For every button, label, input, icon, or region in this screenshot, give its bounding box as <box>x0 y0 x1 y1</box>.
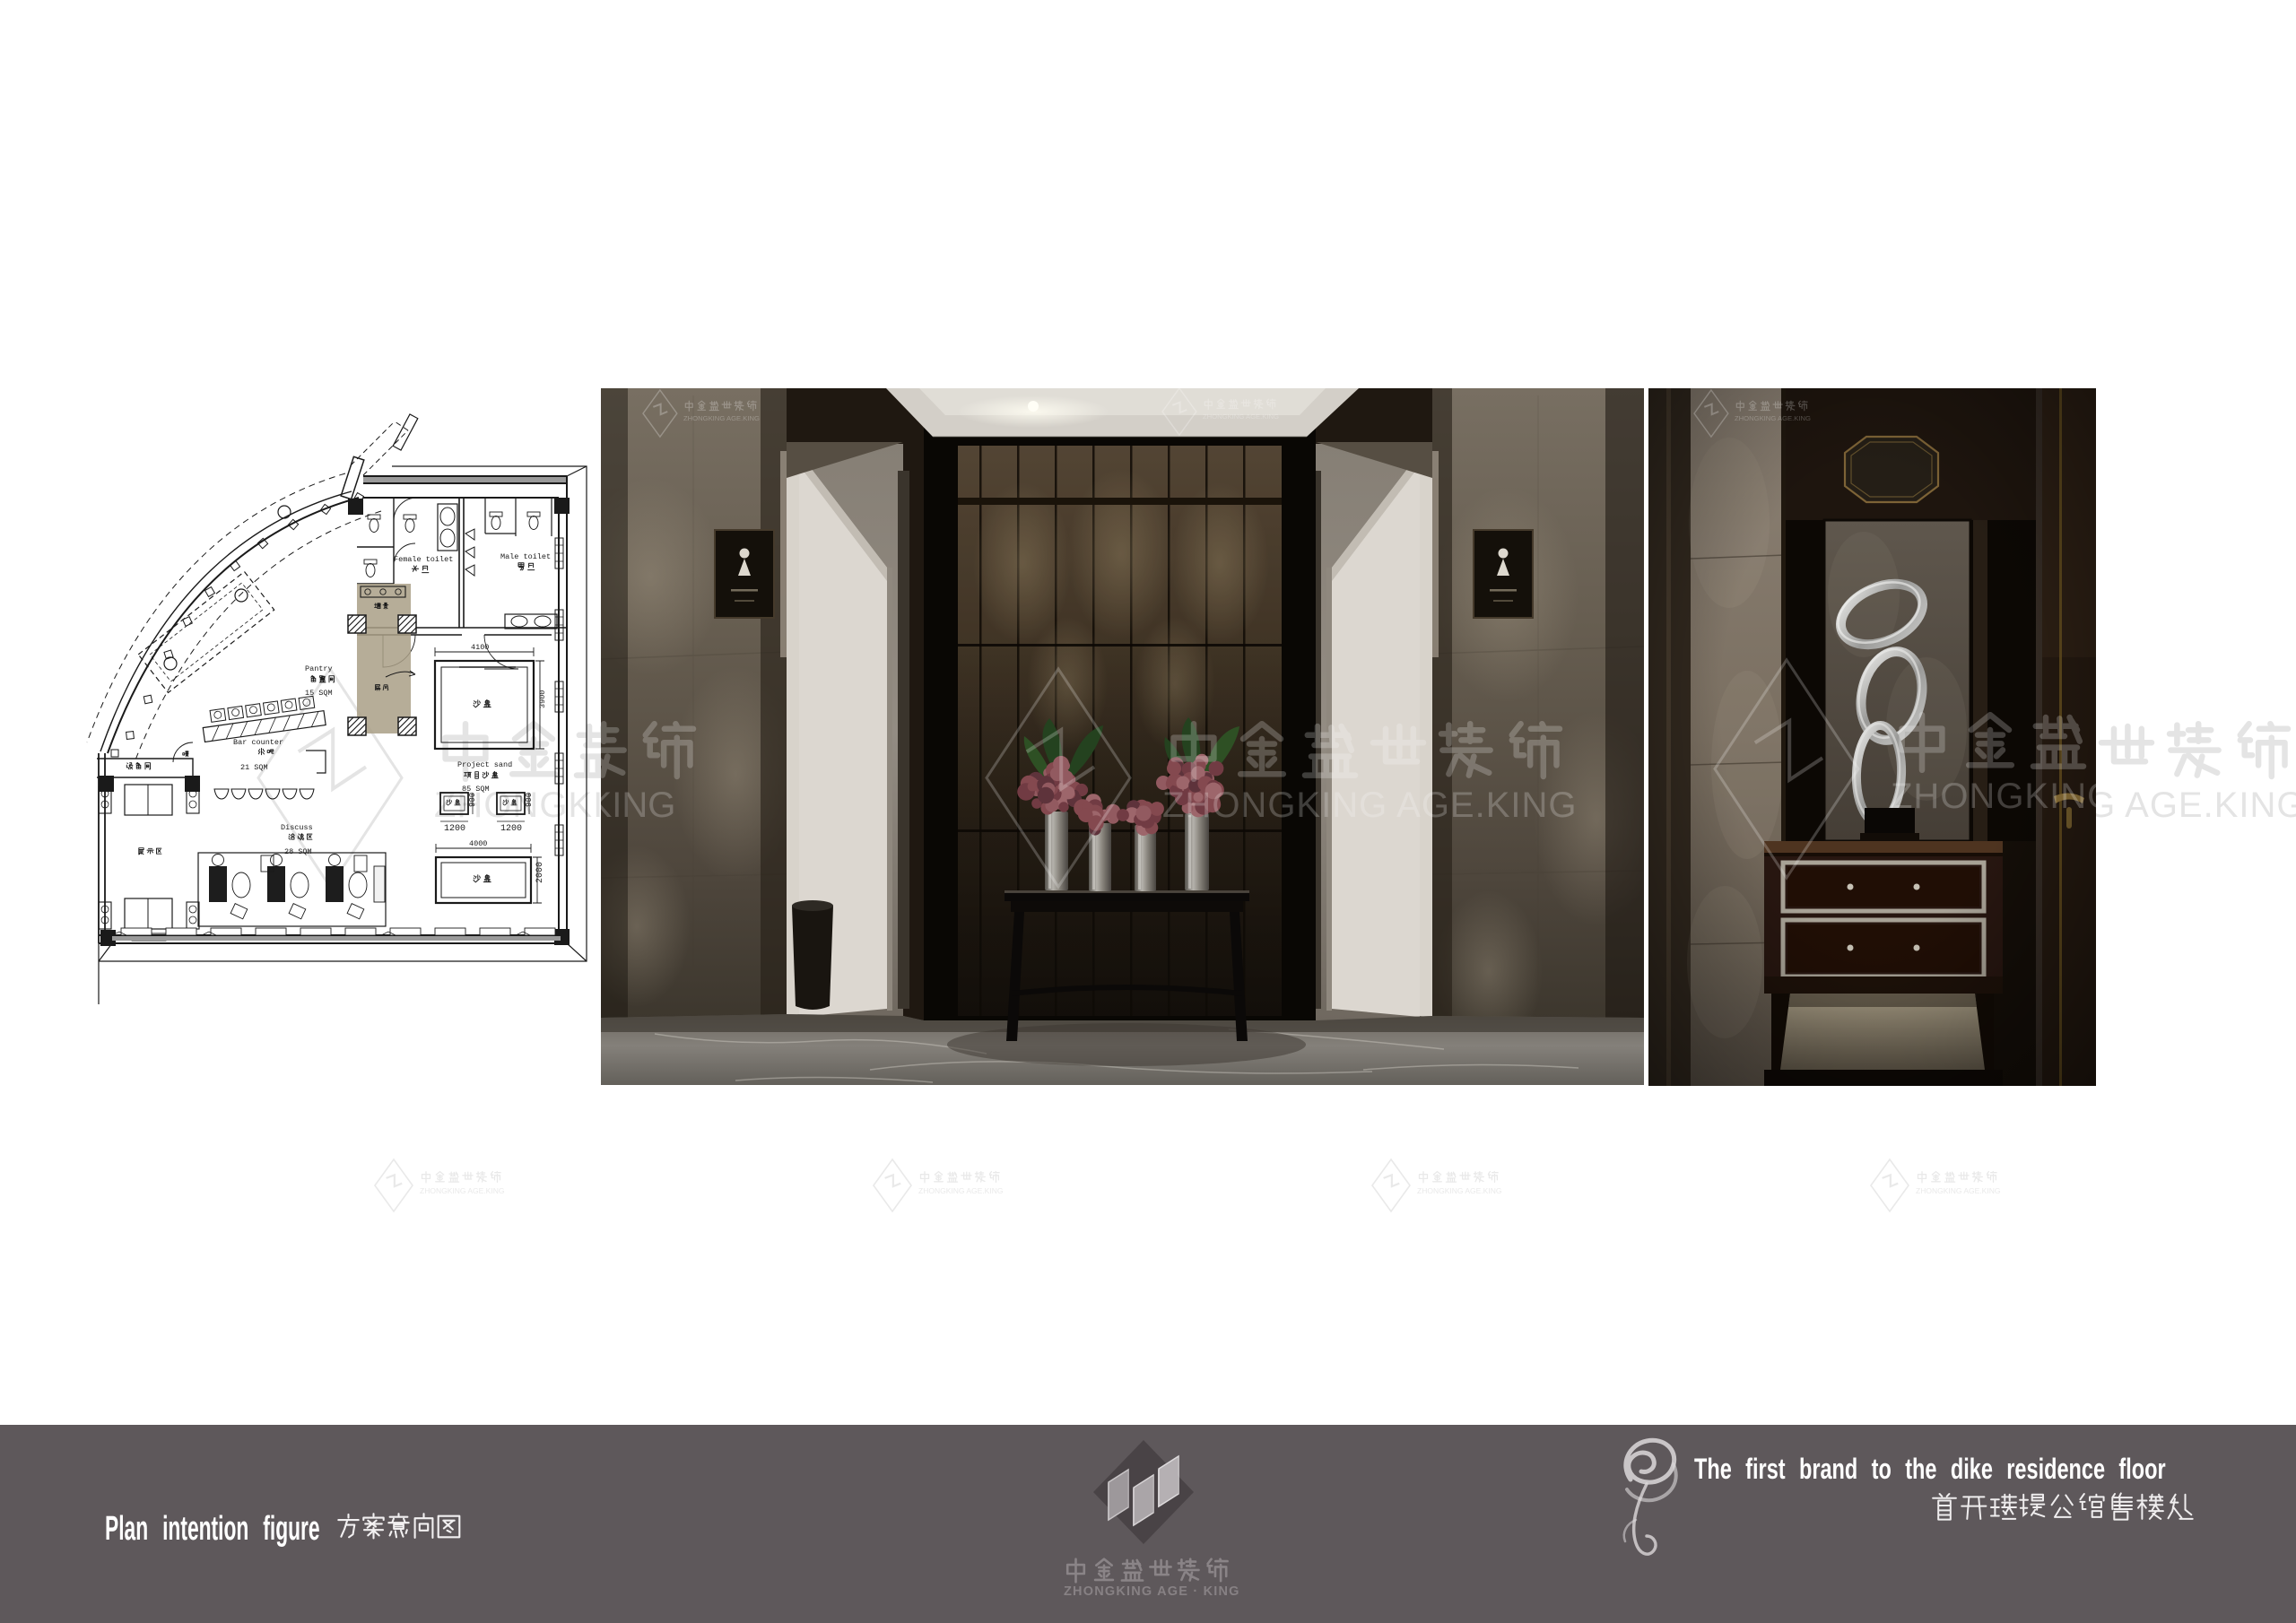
svg-text:3900: 3900 <box>538 690 547 708</box>
svg-text:ZHONGKING AGE.KING: ZHONGKING AGE.KING <box>1891 777 2096 816</box>
svg-text:Male toilet: Male toilet <box>500 552 551 561</box>
svg-text:Bar counter: Bar counter <box>233 738 283 747</box>
svg-text:ZHONGKING AGE.KING: ZHONGKING AGE.KING <box>1916 1186 2000 1195</box>
svg-text:4100: 4100 <box>471 643 489 652</box>
svg-text:ZHONGKING AGE.KING: ZHONGKING AGE.KING <box>1417 1186 1501 1195</box>
svg-text:28 SQM: 28 SQM <box>284 847 312 856</box>
svg-text:Pantry: Pantry <box>305 664 333 673</box>
svg-text:Discuss: Discuss <box>281 823 313 832</box>
svg-text:1200: 1200 <box>500 824 522 834</box>
svg-text:4000: 4000 <box>469 839 487 848</box>
svg-text:ZHONGKING AGE.KING: ZHONGKING AGE.KING <box>1735 414 1811 422</box>
svg-text:900: 900 <box>525 793 534 807</box>
svg-text:Female toilet: Female toilet <box>394 555 453 564</box>
svg-text:ZHONGKING AGE.KING: ZHONGKING AGE.KING <box>918 1186 1003 1195</box>
svg-text:21 SQM: 21 SQM <box>240 763 268 772</box>
svg-text:Project sand: Project sand <box>457 760 512 769</box>
svg-text:ZHONGKING AGE.KING: ZHONGKING AGE.KING <box>1203 412 1279 421</box>
svg-text:G AGE.KING: G AGE.KING <box>601 785 675 825</box>
svg-text:1200: 1200 <box>444 824 465 834</box>
svg-text:ZHONGKING AGE.KING: ZHONGKING AGE.KING <box>1162 785 1578 825</box>
svg-text:2000: 2000 <box>535 862 545 883</box>
svg-text:900: 900 <box>468 793 477 807</box>
svg-text:ZHONGKING AGE.KING: ZHONGKING AGE.KING <box>683 414 760 422</box>
svg-text:ZHONGKING AGE.KING: ZHONGKING AGE.KING <box>420 1186 504 1195</box>
